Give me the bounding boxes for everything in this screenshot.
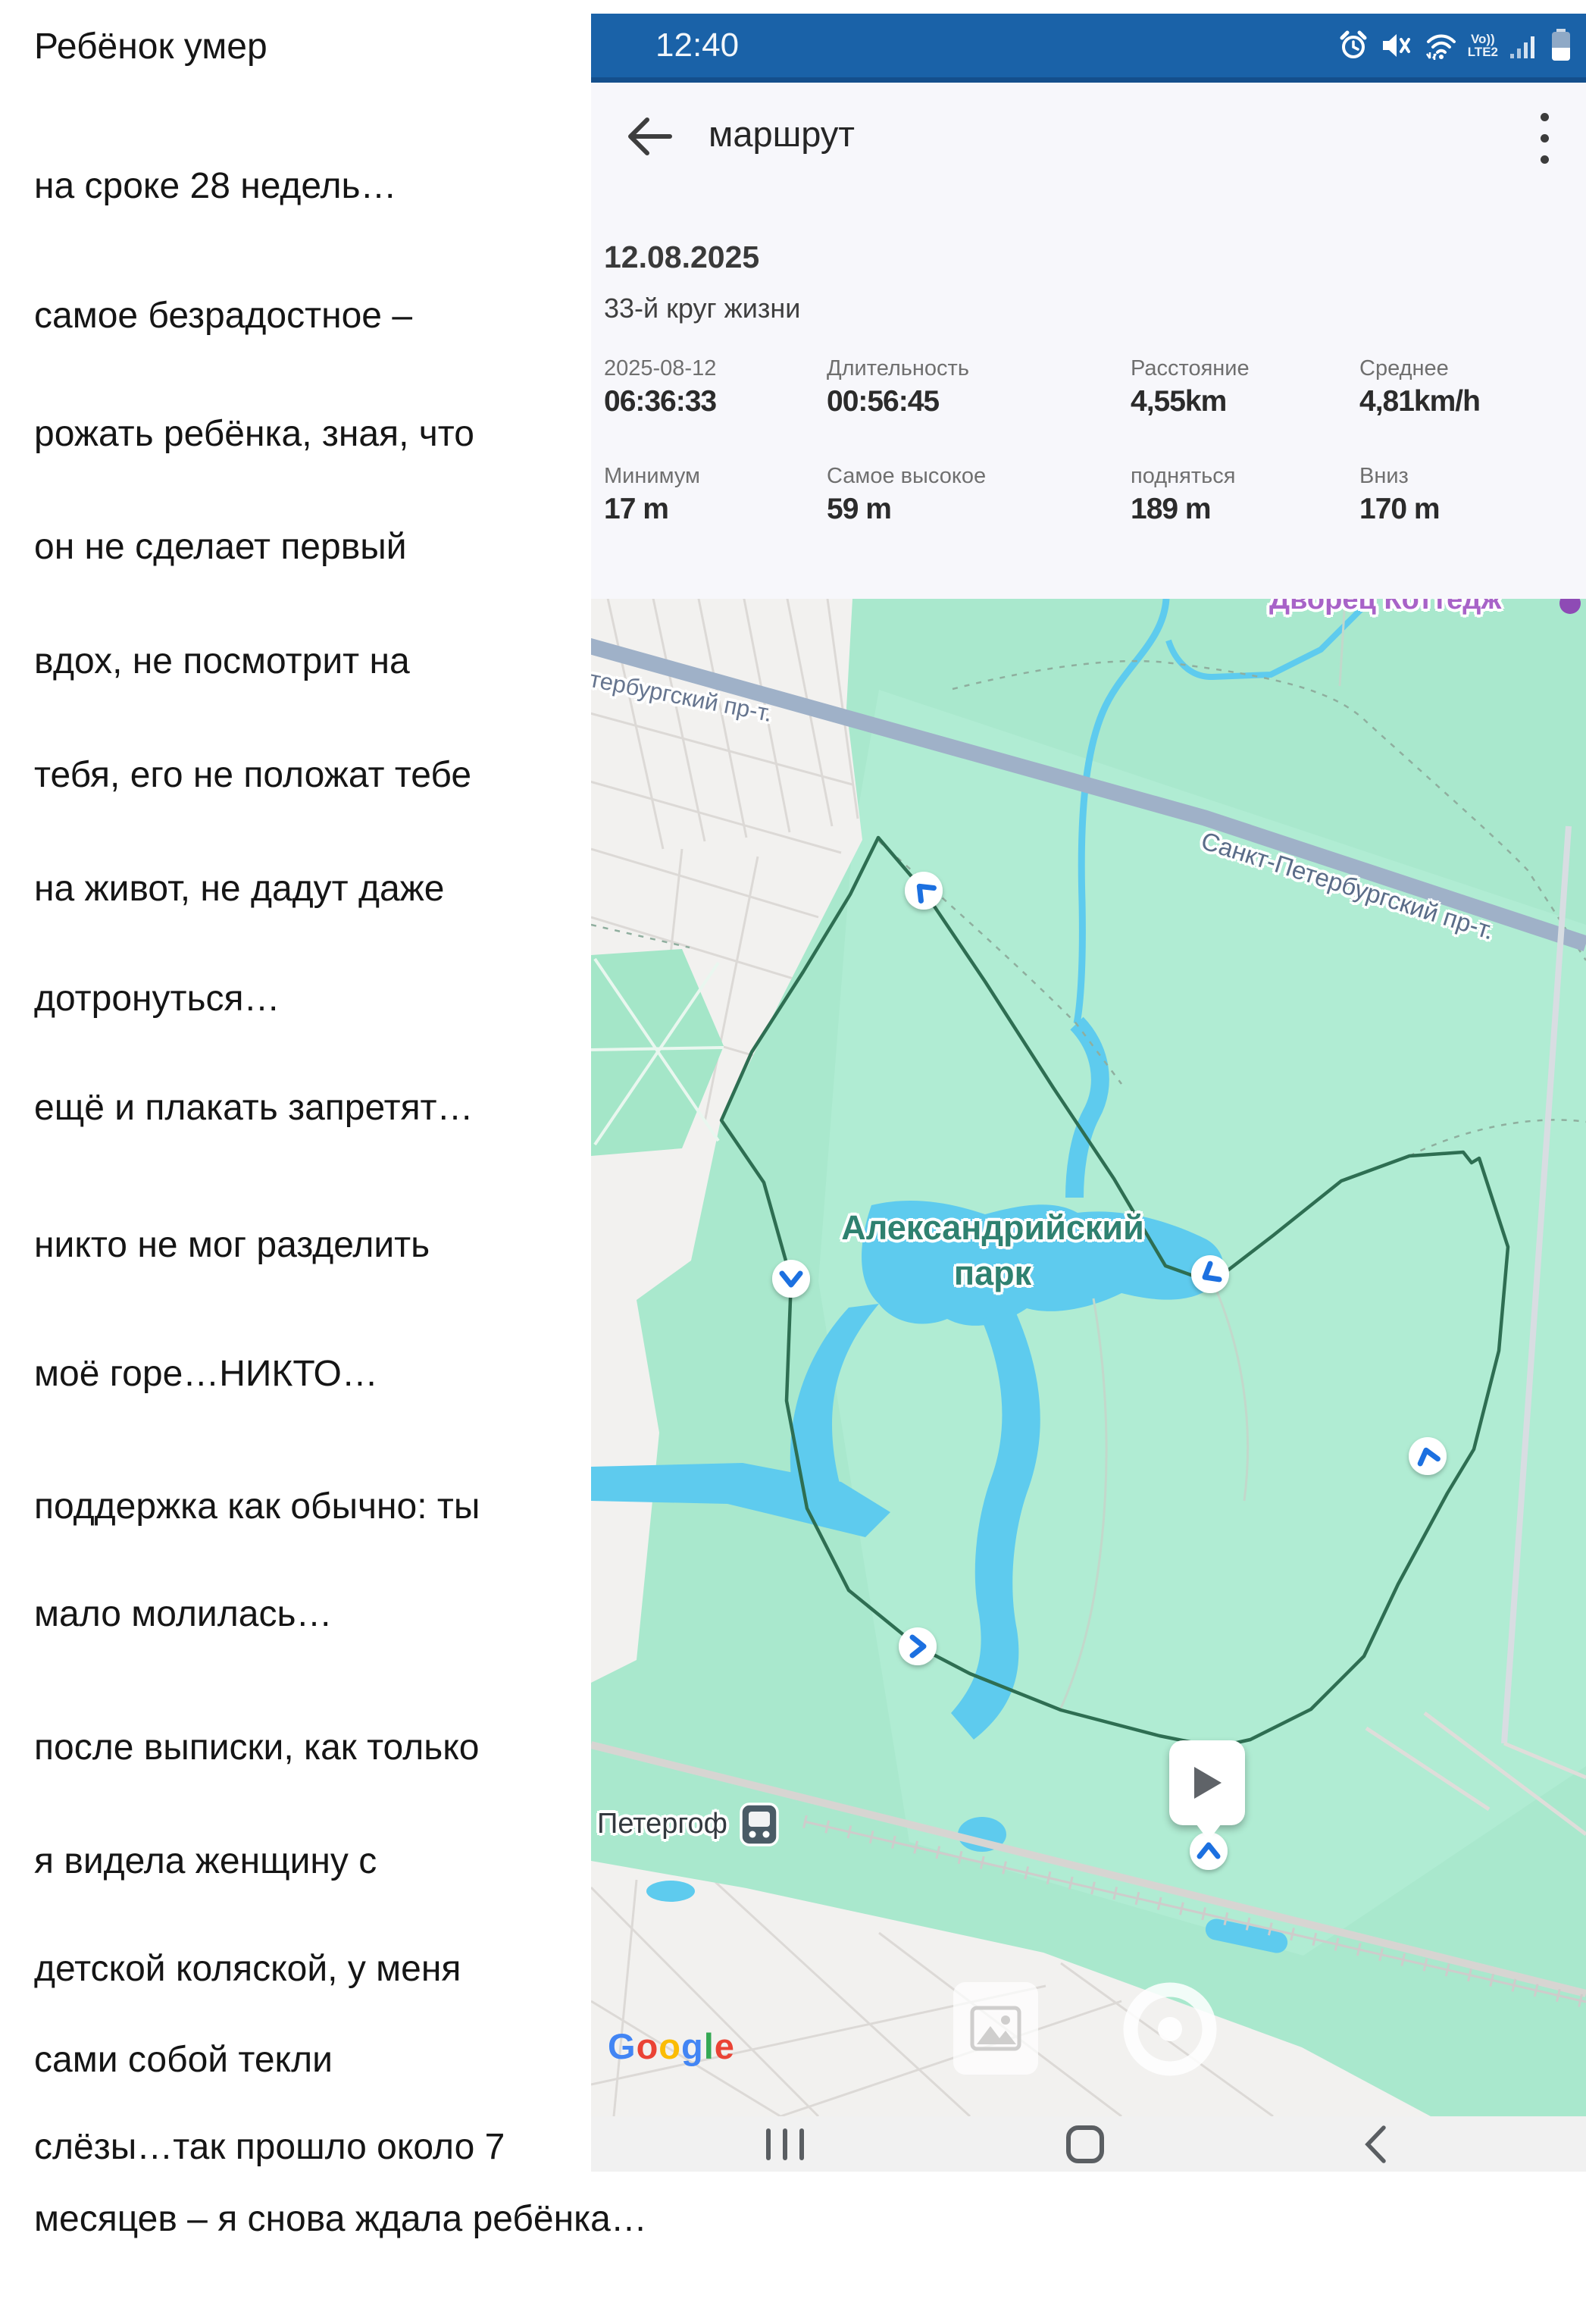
story-line: я видела женщину с [34,1840,377,1882]
stat-label: Самое высокое [827,464,986,489]
route-map[interactable]: тербургский пр-т. Санкт-Петербургский пр… [591,599,1586,2116]
route-summary-panel: 12.08.2025 33-й круг жизни 2025-08-1206:… [591,203,1586,599]
story-line: самое безрадостное – [34,295,412,337]
recents-button[interactable] [747,2116,823,2172]
stat-value: 189 m [1131,493,1211,526]
story-line: после выписки, как только [34,1727,479,1768]
image-icon [969,2002,1022,2055]
screenshot-button[interactable] [953,1982,1038,2075]
park-label: Александрийский парк [727,1205,1258,1296]
back-chevron-icon [1362,2125,1388,2164]
status-time: 12:40 [655,27,739,64]
story-line: тебя, его не положат тебе [34,754,471,796]
volte-icon: Vo)) LTE2 [1468,33,1498,58]
poi-label-top: Дворец Коттедж [1269,599,1501,616]
app-header: маршрут [591,83,1586,203]
record-dot-icon [1158,2017,1182,2041]
stat-value: 06:36:33 [604,385,716,418]
story-line: ещё и плакать запретят… [34,1087,474,1129]
map-canvas [591,599,1586,2116]
story-line: на живот, не дадут даже [34,868,444,910]
stat-label: Минимум [604,464,700,489]
stat-label: 2025-08-12 [604,356,716,381]
story-line: никто не мог разделить [34,1224,430,1266]
story-line: мало молилась… [34,1593,332,1635]
play-route-button[interactable] [1169,1740,1245,1825]
wifi-icon [1422,28,1457,63]
direction-arrow-icon [899,1627,937,1665]
story-line: слёзы…так прошло около 7 [34,2126,505,2168]
story-line: моё горе…НИКТО… [34,1353,378,1395]
stat-label: Расстояние [1131,356,1250,381]
battery-icon [1550,27,1572,64]
trip-date: 12.08.2025 [604,240,759,275]
story-line: на сроке 28 недель… [34,165,397,207]
story-line: сами собой текли [34,2039,333,2081]
play-icon [1190,1764,1225,1802]
stat-label: Вниз [1359,464,1409,489]
phone-screenshot: 12:40 Vo)) LTE2 [591,14,1586,2172]
story-line: он не сделает первый [34,526,407,568]
story-line: дотронуться… [34,978,280,1019]
kebab-menu-icon[interactable] [1530,110,1560,168]
train-station-icon [741,1804,777,1845]
direction-arrow-icon [905,872,943,910]
story-line: Ребёнок умер [34,26,267,67]
mute-icon [1380,29,1412,62]
home-icon [1065,2125,1105,2164]
stat-value: 4,55km [1131,385,1226,418]
stat-label: Длительность [827,356,969,381]
trip-name: 33-й круг жизни [604,293,800,324]
stat-value: 4,81km/h [1359,385,1480,418]
direction-arrow-icon [1409,1437,1447,1475]
status-icons: Vo)) LTE2 [1337,14,1572,77]
stat-value: 17 m [604,493,668,526]
story-text-column: Ребёнок умерна сроке 28 недель…самое без… [0,0,591,2324]
stat-label: Среднее [1359,356,1449,381]
back-nav-button[interactable] [1337,2116,1413,2172]
stat-value: 170 m [1359,493,1440,526]
back-arrow-icon[interactable] [623,111,676,161]
play-balloon-pointer [1193,1821,1224,1840]
google-logo: Google [608,2025,735,2067]
signal-icon [1509,29,1539,62]
story-line: вдох, не посмотрит на [34,641,410,682]
page-title: маршрут [709,113,855,155]
status-bar-divider [591,77,1586,83]
town-label: Петергоф [597,1808,727,1840]
status-bar: 12:40 Vo)) LTE2 [591,14,1586,77]
story-line: поддержка как обычно: ты [34,1486,480,1527]
alarm-icon [1337,29,1369,62]
stat-value: 59 m [827,493,891,526]
recents-icon [763,2127,807,2162]
story-line: месяцев – я снова ждала ребёнка… [34,2198,647,2240]
android-nav-bar [591,2116,1586,2172]
story-line: детской коляской, у меня [34,1948,461,1990]
stat-label: подняться [1131,464,1235,489]
record-button[interactable] [1117,1976,1223,2082]
stat-value: 00:56:45 [827,385,939,418]
home-button[interactable] [1047,2116,1123,2172]
story-line: рожать ребёнка, зная, что [34,413,474,455]
